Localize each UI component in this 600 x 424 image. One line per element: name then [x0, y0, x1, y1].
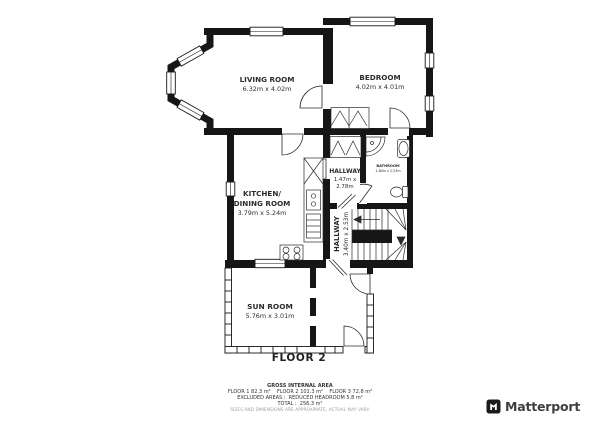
- hallway-lower-dims: 3.40m x 2.53m: [344, 212, 350, 257]
- hallway-upper-label: HALLWAY: [329, 168, 361, 175]
- bathroom-label: BATHROOM: [376, 164, 400, 168]
- door-arc: [344, 326, 364, 346]
- shower-icon: [366, 137, 385, 156]
- living-room-dims: 6.32m x 4.02m: [243, 85, 292, 93]
- sun-room-label: SUN ROOM: [247, 302, 293, 311]
- stove-icon: [280, 245, 303, 260]
- stairs-landing-wall: [352, 230, 392, 243]
- window-icon: [425, 53, 434, 68]
- sink-icon: [398, 140, 410, 158]
- bedroom-label: BEDROOM: [359, 73, 400, 82]
- door-arc: [300, 86, 322, 108]
- wall-sunroom-divider: [310, 268, 316, 348]
- hallway-upper-dims-2: 2.78m: [336, 184, 354, 190]
- kitchen-counter: [304, 158, 323, 242]
- wall-bedroom-right: [426, 18, 433, 137]
- wardrobe-icon: [331, 108, 369, 129]
- window-icon: [350, 17, 395, 26]
- window-icon: [255, 259, 285, 267]
- bay-window-wall: [171, 32, 210, 132]
- bay-window-icon: [167, 72, 176, 94]
- wall-middle-bottom: [225, 260, 413, 268]
- kitchen-label-1: KITCHEN/: [243, 189, 281, 198]
- stairs-arrow-icon: [354, 216, 361, 223]
- kitchen-dims: 3.79m x 5.24m: [238, 209, 287, 217]
- kitchen-label-2: DINING ROOM: [234, 199, 291, 208]
- living-room-label: LIVING ROOM: [240, 75, 295, 84]
- floor-plan-drawing: LIVING ROOM 6.32m x 4.02m BEDROOM 4.02m …: [0, 0, 600, 424]
- door-arc: [282, 134, 303, 155]
- matterport-logo-text: Matterport: [505, 399, 580, 414]
- door-arc: [350, 274, 370, 294]
- wall-kitchen-hall-divider: [323, 135, 330, 260]
- wall-kitchen-left: [227, 135, 234, 260]
- glazed-wall-left: [225, 268, 232, 353]
- matterport-logo-icon: [486, 399, 501, 414]
- closet-icon: [330, 137, 361, 158]
- sun-room-dims: 5.76m x 3.01m: [246, 312, 295, 320]
- opening: [310, 288, 317, 298]
- bay-window-icon: [177, 46, 204, 66]
- window-icon: [425, 96, 434, 111]
- glazed-wall-right: [367, 294, 374, 353]
- opening: [359, 183, 367, 204]
- opening: [323, 84, 334, 109]
- hallway-upper-dims-1: 1.47m x: [334, 177, 357, 183]
- floor-title: FLOOR 2: [272, 352, 327, 364]
- floor-plan-page: LIVING ROOM 6.32m x 4.02m BEDROOM 4.02m …: [0, 0, 600, 424]
- sunroom-right-post: [367, 268, 373, 274]
- matterport-logo: Matterport: [486, 399, 580, 414]
- hallway-lower-label: HALLWAY: [333, 216, 341, 252]
- toilet-icon: [391, 187, 409, 198]
- bay-window-icon: [177, 100, 204, 120]
- door-arc: [390, 108, 410, 128]
- bathroom-dims: 1.80m x 2.53m: [375, 169, 400, 173]
- window-icon: [250, 27, 283, 36]
- bedroom-dims: 4.02m x 4.01m: [356, 83, 405, 91]
- opening: [310, 316, 317, 326]
- window-icon: [226, 182, 235, 196]
